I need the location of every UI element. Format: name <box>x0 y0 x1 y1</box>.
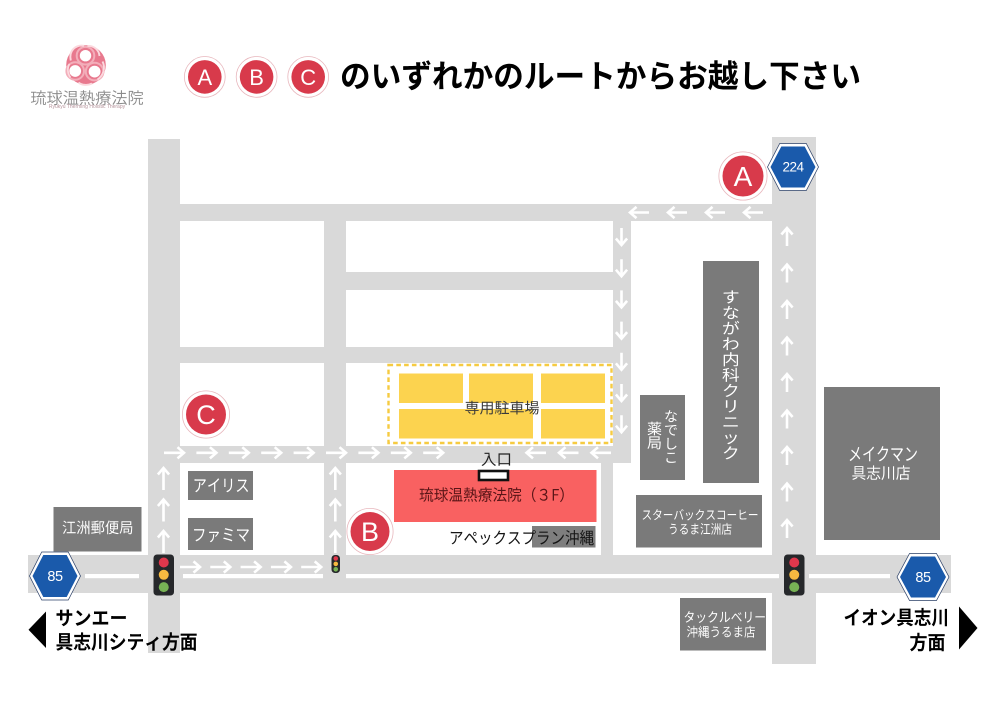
svg-text:85: 85 <box>915 570 931 586</box>
svg-text:B: B <box>361 517 379 547</box>
svg-text:C: C <box>196 400 216 430</box>
svg-text:85: 85 <box>47 569 63 585</box>
svg-text:B: B <box>249 65 264 90</box>
svg-text:A: A <box>734 161 753 192</box>
svg-text:A: A <box>197 65 212 90</box>
svg-text:224: 224 <box>782 160 804 175</box>
svg-text:Ryukyu Therming Holistic Thera: Ryukyu Therming Holistic Therapy <box>49 104 126 110</box>
svg-text:C: C <box>300 65 316 90</box>
